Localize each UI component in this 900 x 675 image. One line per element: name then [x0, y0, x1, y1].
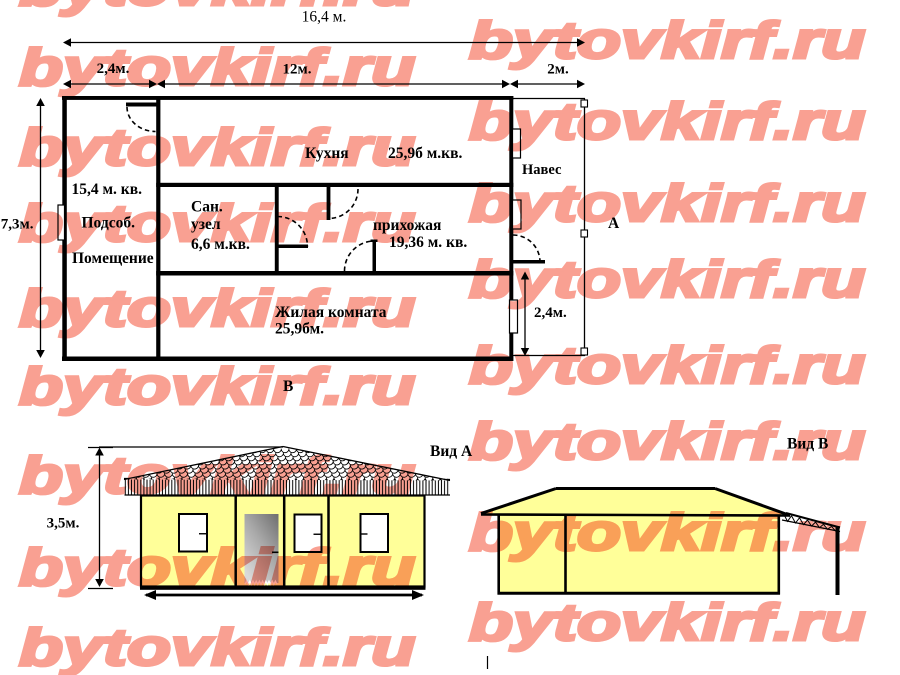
svg-text:Вид А: Вид А: [430, 443, 473, 460]
svg-text:Помещение: Помещение: [72, 250, 154, 267]
svg-text:3,5м.: 3,5м.: [47, 516, 80, 532]
